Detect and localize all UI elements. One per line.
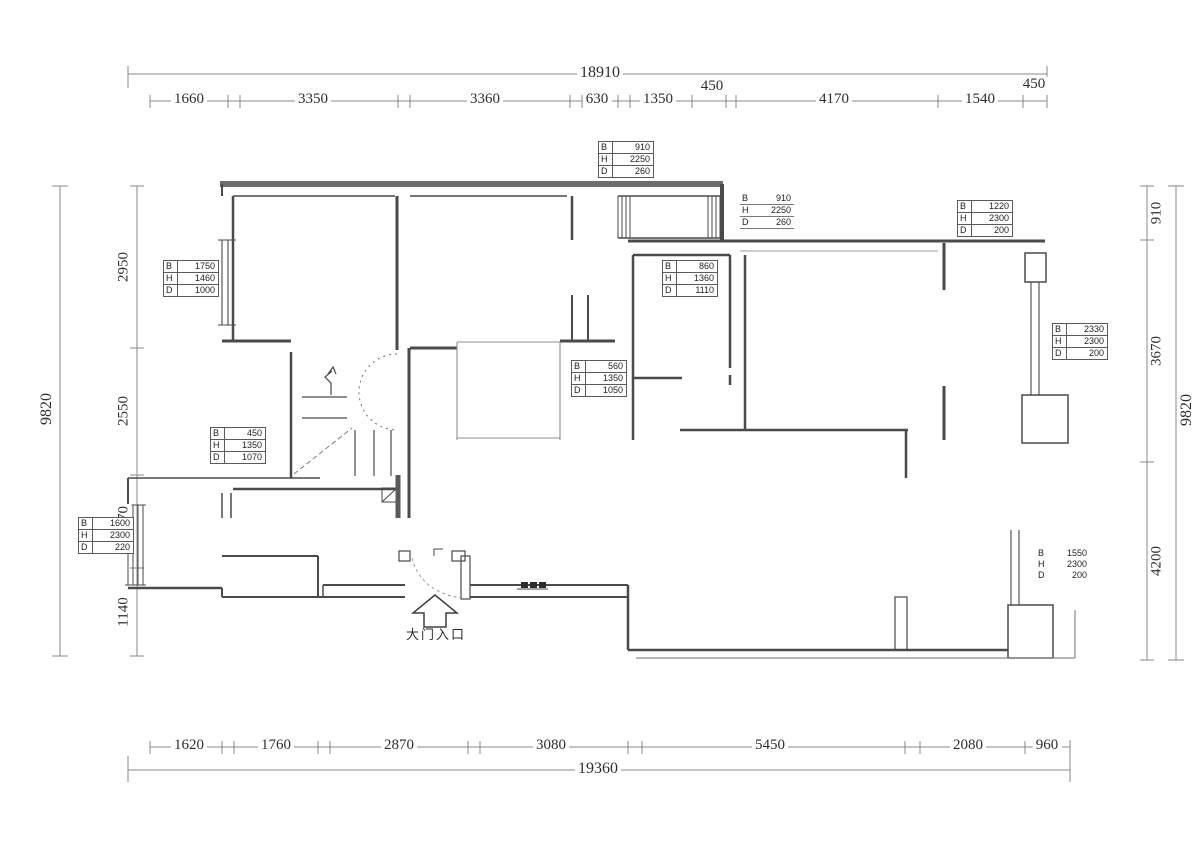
window-annotation-hall: B560 H1350 D1050 [571, 360, 627, 397]
dim-top-seg: 1540 [962, 92, 998, 107]
dim-bottom-seg: 2870 [381, 738, 417, 753]
dim-top-seg: 1350 [640, 92, 676, 107]
window-annotation-bath: B860 H1360 D1110 [662, 260, 718, 297]
dim-right-overall: 9820 [1179, 392, 1195, 428]
dim-bottom-overall: 19360 [575, 761, 621, 777]
dim-right-seg: 910 [1150, 200, 1165, 227]
window-annotation-lower-left: B1600 H2300 D220 [78, 517, 134, 554]
window-annotation-right-side: B2330 H2300 D200 [1052, 323, 1108, 360]
floor-plan-drawing [0, 0, 1200, 848]
walls-layer [125, 184, 1075, 658]
dim-left-seg: 2550 [117, 394, 132, 428]
dim-bottom-seg: 960 [1033, 738, 1062, 753]
dim-top-seg: 4170 [816, 92, 852, 107]
dim-top-seg: 1660 [171, 92, 207, 107]
dim-bottom-seg: 2080 [950, 738, 986, 753]
dim-top-seg: 3360 [467, 92, 503, 107]
dim-bottom-seg: 1760 [258, 738, 294, 753]
window-annotation-left-room: B1750 H1460 D1000 [163, 260, 219, 297]
entrance-label: 大门入口 [406, 624, 466, 643]
dim-right-seg: 4200 [1150, 544, 1165, 578]
dim-left-seg: 1140 [117, 595, 132, 628]
dim-left-overall: 9820 [39, 391, 55, 427]
window-annotation-stair: B450 H1350 D1070 [210, 427, 266, 464]
window-annotation-top-bay: B910 H2250 D260 [598, 141, 654, 178]
floor-plan-canvas: 18910 1660 3350 3360 630 1350 450 4170 1… [0, 0, 1200, 848]
staircase [291, 348, 409, 518]
dim-top-overall: 18910 [577, 65, 623, 81]
entry-door [399, 549, 470, 599]
dim-top-seg: 3350 [295, 92, 331, 107]
window-annotation-top-bay-side: B910 H2250 D260 [740, 193, 794, 229]
dim-bottom-seg: 3080 [533, 738, 569, 753]
dim-top-seg: 630 [583, 92, 612, 107]
dim-left-seg: 2950 [117, 250, 132, 284]
dim-top-seg: 450 [1020, 77, 1049, 92]
dim-bottom-seg: 1620 [171, 738, 207, 753]
window-annotation-lower-right: B1550 H2300 D200 [1036, 548, 1090, 581]
window-annotation-top-right: B1220 H2300 D200 [957, 200, 1013, 237]
dim-bottom-seg: 5450 [752, 738, 788, 753]
entrance-arrow-icon [413, 595, 457, 627]
dim-right-seg: 3670 [1150, 334, 1165, 368]
dim-top-seg: 450 [698, 79, 727, 94]
